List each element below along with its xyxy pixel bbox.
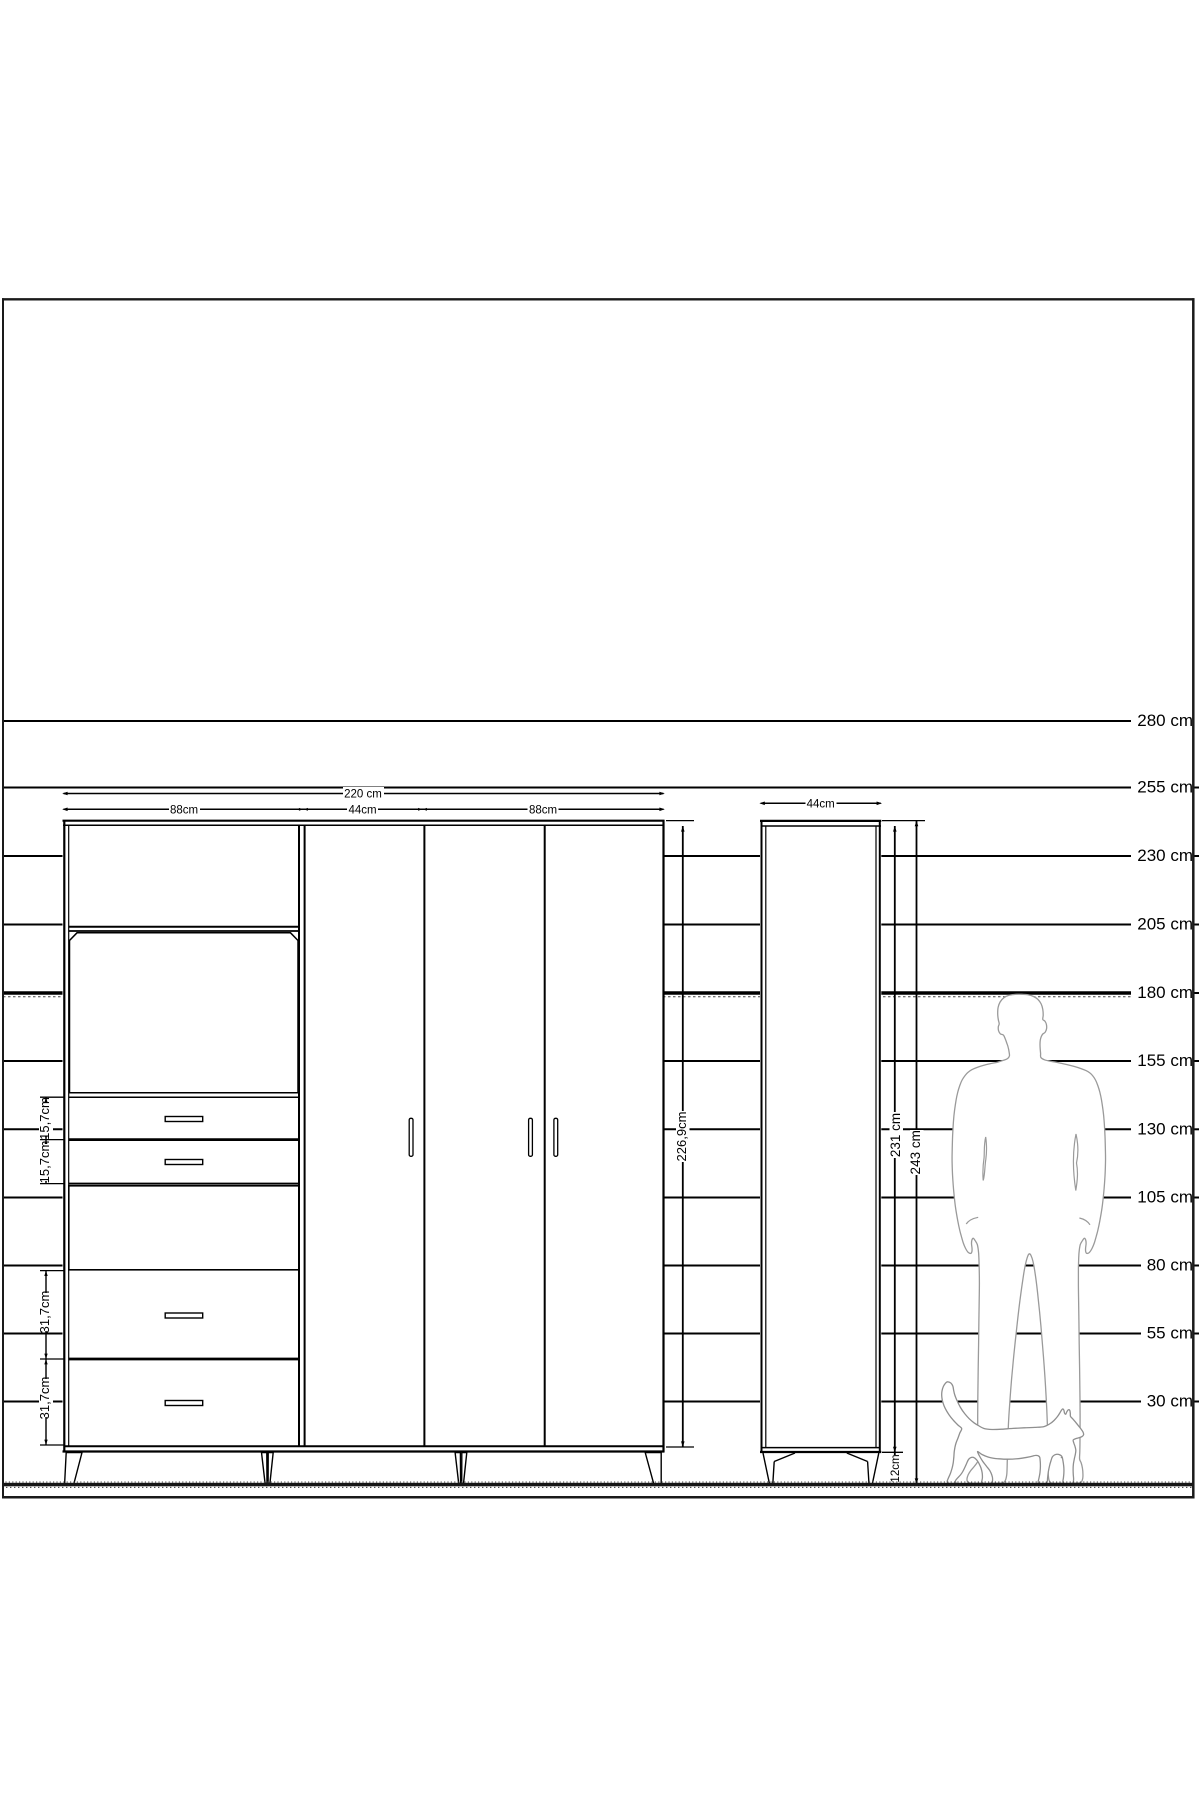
svg-text:226,9cm: 226,9cm	[674, 1112, 689, 1162]
svg-text:44cm: 44cm	[807, 798, 835, 810]
svg-text:105 cm: 105 cm	[1137, 1188, 1193, 1207]
svg-text:80 cm: 80 cm	[1147, 1256, 1193, 1275]
svg-text:15,7cm: 15,7cm	[37, 1141, 52, 1184]
svg-text:55 cm: 55 cm	[1147, 1324, 1193, 1343]
svg-text:31,7cm: 31,7cm	[37, 1377, 52, 1420]
svg-text:205 cm: 205 cm	[1137, 915, 1193, 934]
svg-text:280 cm: 280 cm	[1137, 711, 1193, 730]
svg-text:180 cm: 180 cm	[1137, 983, 1193, 1002]
svg-text:243 cm: 243 cm	[908, 1130, 923, 1174]
svg-text:88cm: 88cm	[529, 804, 557, 816]
svg-text:88cm: 88cm	[170, 804, 198, 816]
svg-text:155 cm: 155 cm	[1137, 1051, 1193, 1070]
svg-text:130 cm: 130 cm	[1137, 1119, 1193, 1138]
svg-text:44cm: 44cm	[348, 804, 376, 816]
svg-text:12cm: 12cm	[890, 1454, 902, 1482]
svg-text:220 cm: 220 cm	[344, 789, 382, 801]
svg-text:15,7cm: 15,7cm	[37, 1097, 52, 1140]
svg-text:31,7cm: 31,7cm	[37, 1291, 52, 1334]
svg-text:230 cm: 230 cm	[1137, 846, 1193, 865]
svg-text:255 cm: 255 cm	[1137, 778, 1193, 797]
svg-text:231 cm: 231 cm	[888, 1113, 903, 1157]
svg-text:30 cm: 30 cm	[1147, 1392, 1193, 1411]
